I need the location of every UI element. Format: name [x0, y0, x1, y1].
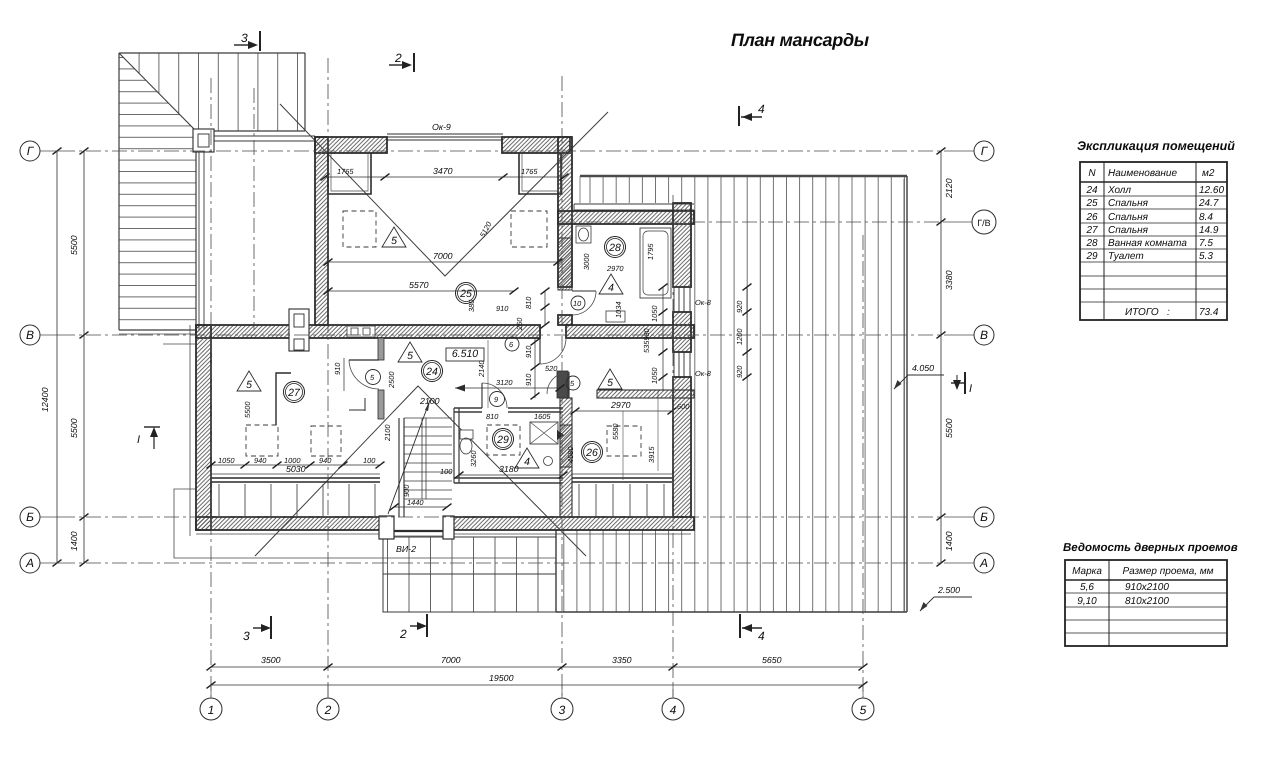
- svg-text:1034: 1034: [614, 302, 623, 318]
- svg-text:3: 3: [559, 703, 566, 717]
- svg-text:Ок-8: Ок-8: [695, 369, 712, 378]
- svg-text:600: 600: [677, 402, 690, 411]
- svg-text:29: 29: [496, 434, 509, 446]
- svg-text:24: 24: [1085, 185, 1098, 196]
- svg-text:6: 6: [509, 340, 514, 349]
- svg-text:3350: 3350: [612, 655, 632, 665]
- svg-text:3120: 3120: [496, 378, 513, 387]
- svg-text:Спальня: Спальня: [1108, 225, 1149, 236]
- svg-text:Г/В: Г/В: [977, 218, 990, 228]
- svg-text:1: 1: [208, 703, 215, 717]
- svg-text:N: N: [1088, 168, 1096, 179]
- svg-text:5: 5: [407, 350, 413, 362]
- svg-text:1795: 1795: [646, 243, 655, 260]
- svg-text:3470: 3470: [433, 166, 453, 176]
- svg-text:7000: 7000: [433, 251, 453, 261]
- svg-text:12.60: 12.60: [1199, 185, 1224, 196]
- svg-text:1400: 1400: [944, 531, 954, 551]
- svg-text:26: 26: [585, 447, 598, 459]
- svg-text:6.510: 6.510: [452, 348, 478, 360]
- svg-text:910: 910: [524, 345, 533, 358]
- svg-text:1605: 1605: [534, 412, 551, 421]
- svg-text:4: 4: [758, 629, 765, 643]
- svg-text:535980: 535980: [642, 327, 651, 353]
- svg-text:5: 5: [370, 373, 375, 382]
- svg-text:Размер проема, мм: Размер проема, мм: [1122, 566, 1213, 577]
- svg-text:100: 100: [440, 467, 453, 476]
- svg-text:1440: 1440: [407, 498, 424, 507]
- svg-text:4: 4: [670, 703, 677, 717]
- svg-text:940: 940: [319, 456, 332, 465]
- svg-text:27: 27: [1085, 225, 1098, 236]
- svg-text:910: 910: [524, 373, 533, 386]
- svg-text:940: 940: [254, 456, 267, 465]
- svg-text:Марка: Марка: [1072, 566, 1102, 577]
- svg-text:5: 5: [570, 379, 575, 388]
- svg-text:2100: 2100: [383, 424, 392, 442]
- svg-text:26: 26: [1085, 212, 1098, 223]
- svg-text:810х2100: 810х2100: [1125, 596, 1169, 607]
- svg-text:1050: 1050: [650, 305, 659, 322]
- svg-text:3260: 3260: [469, 450, 478, 467]
- svg-text:380: 380: [467, 299, 476, 312]
- svg-text:260: 260: [515, 317, 524, 331]
- svg-text:3: 3: [243, 629, 250, 643]
- svg-text:1765: 1765: [521, 167, 538, 176]
- svg-text:24: 24: [425, 366, 438, 378]
- svg-text:12400: 12400: [40, 387, 50, 412]
- svg-text:28: 28: [608, 242, 621, 254]
- svg-text:Ведомость дверных проемов: Ведомость дверных проемов: [1063, 542, 1238, 554]
- svg-text:4: 4: [608, 282, 614, 294]
- svg-text:I: I: [969, 383, 972, 395]
- svg-text:27: 27: [287, 387, 301, 399]
- svg-text:3915: 3915: [647, 446, 656, 463]
- svg-text:14.9: 14.9: [1199, 225, 1219, 236]
- svg-text:2: 2: [324, 703, 332, 717]
- svg-text:4.050: 4.050: [912, 363, 934, 373]
- svg-text:73.4: 73.4: [1199, 307, 1219, 318]
- svg-text:920: 920: [735, 300, 744, 313]
- svg-text:5500: 5500: [69, 418, 79, 438]
- svg-text:29: 29: [1085, 251, 1098, 262]
- svg-text:I: I: [137, 434, 140, 446]
- svg-text:25: 25: [459, 288, 472, 300]
- svg-text:7.5: 7.5: [1199, 238, 1213, 249]
- svg-text:Спальня: Спальня: [1108, 212, 1149, 223]
- svg-text:4580: 4580: [566, 446, 575, 463]
- svg-text:2970: 2970: [606, 264, 624, 273]
- svg-text:5: 5: [860, 703, 867, 717]
- svg-text:м2: м2: [1202, 168, 1215, 179]
- svg-text:1765: 1765: [337, 167, 354, 176]
- svg-text:520: 520: [545, 364, 558, 373]
- svg-text:В: В: [26, 328, 34, 342]
- svg-text:Г: Г: [981, 144, 989, 158]
- svg-text:910: 910: [333, 362, 342, 375]
- svg-text:Ванная комната: Ванная комната: [1108, 238, 1187, 249]
- svg-text:100: 100: [363, 456, 376, 465]
- svg-text:5500: 5500: [69, 235, 79, 255]
- svg-text:19500: 19500: [489, 673, 514, 683]
- svg-text:5,6: 5,6: [1080, 582, 1094, 593]
- svg-text:910: 910: [496, 304, 509, 313]
- svg-text:Туалет: Туалет: [1108, 251, 1144, 262]
- svg-text:5: 5: [391, 235, 397, 247]
- svg-text:3: 3: [241, 31, 248, 45]
- svg-text:1400: 1400: [69, 531, 79, 551]
- svg-text:5500: 5500: [944, 418, 954, 438]
- svg-text:1200: 1200: [735, 328, 744, 345]
- svg-text:4: 4: [524, 456, 530, 468]
- svg-text:Наименование: Наименование: [1108, 168, 1177, 179]
- svg-text:9,10: 9,10: [1077, 596, 1097, 607]
- svg-text:А: А: [979, 556, 988, 570]
- svg-text:2970: 2970: [610, 400, 631, 410]
- svg-text:28: 28: [1085, 238, 1098, 249]
- svg-text:ИТОГО :: ИТОГО :: [1125, 307, 1170, 318]
- svg-text:5570: 5570: [409, 280, 429, 290]
- svg-text:5.3: 5.3: [1199, 251, 1213, 262]
- svg-text:1050: 1050: [650, 367, 659, 384]
- svg-text:ВИ-2: ВИ-2: [396, 544, 416, 554]
- svg-text:810: 810: [486, 412, 499, 421]
- svg-text:Холл: Холл: [1107, 185, 1131, 196]
- svg-text:Г: Г: [27, 144, 35, 158]
- svg-text:3180: 3180: [499, 464, 519, 474]
- svg-text:5030: 5030: [286, 464, 306, 474]
- svg-text:Б: Б: [26, 510, 34, 524]
- svg-text:Спальня: Спальня: [1108, 198, 1149, 209]
- svg-text:2: 2: [399, 627, 407, 641]
- svg-text:Б: Б: [980, 510, 988, 524]
- svg-text:4: 4: [758, 102, 765, 116]
- svg-text:3380: 3380: [944, 270, 954, 290]
- svg-text:3000: 3000: [582, 253, 591, 270]
- svg-text:Ок-8: Ок-8: [695, 298, 712, 307]
- svg-text:5580: 5580: [611, 423, 620, 440]
- svg-text:900: 900: [402, 484, 411, 497]
- svg-text:2500: 2500: [387, 371, 396, 389]
- svg-text:5: 5: [607, 377, 613, 389]
- svg-text:3500: 3500: [261, 655, 281, 665]
- svg-text:2: 2: [394, 51, 402, 65]
- svg-text:2100: 2100: [419, 396, 440, 406]
- svg-text:В: В: [980, 328, 988, 342]
- svg-text:Ок-9: Ок-9: [432, 122, 451, 132]
- svg-text:Экспликация помещений: Экспликация помещений: [1077, 139, 1235, 153]
- svg-text:910х2100: 910х2100: [1125, 582, 1169, 593]
- svg-text:План мансарды: План мансарды: [731, 30, 870, 50]
- svg-text:920: 920: [735, 365, 744, 378]
- svg-text:24.7: 24.7: [1198, 198, 1219, 209]
- svg-text:9: 9: [494, 395, 498, 404]
- svg-text:2.500: 2.500: [937, 585, 960, 595]
- svg-text:2140: 2140: [477, 360, 486, 378]
- svg-text:А: А: [25, 556, 34, 570]
- svg-text:810: 810: [524, 296, 533, 309]
- svg-text:7000: 7000: [441, 655, 461, 665]
- svg-text:1050: 1050: [218, 456, 235, 465]
- svg-text:8.4: 8.4: [1199, 212, 1213, 223]
- svg-text:5650: 5650: [762, 655, 782, 665]
- svg-text:5500: 5500: [243, 401, 252, 418]
- svg-text:10: 10: [573, 299, 582, 308]
- svg-text:2120: 2120: [944, 178, 954, 199]
- svg-text:5: 5: [246, 379, 252, 391]
- svg-text:25: 25: [1085, 198, 1098, 209]
